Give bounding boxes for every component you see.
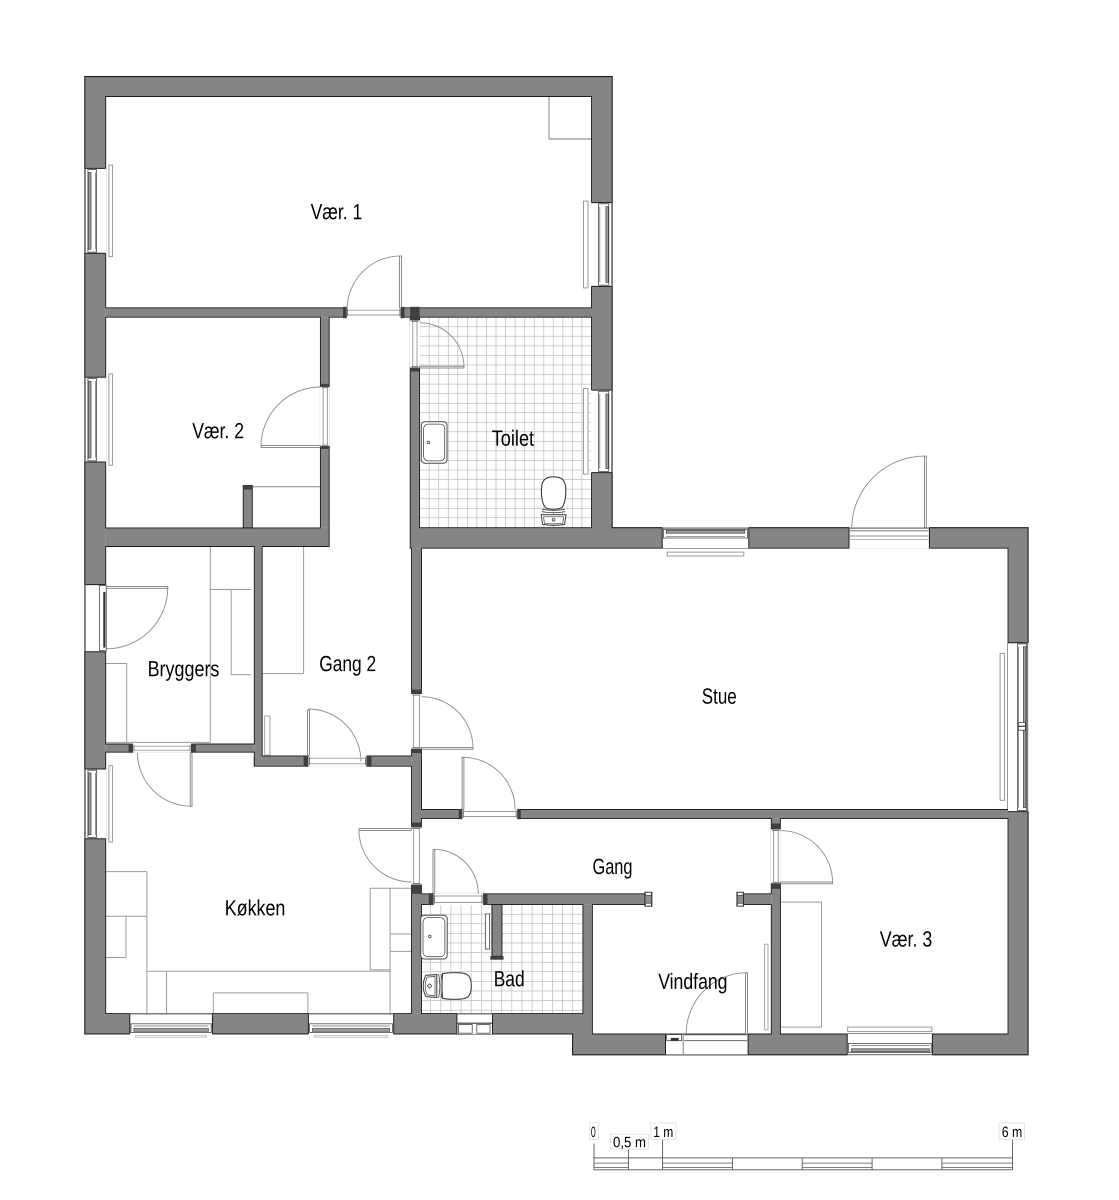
svg-text:0,5 m: 0,5 m xyxy=(613,1134,646,1151)
svg-text:Vær. 1: Vær. 1 xyxy=(311,199,363,224)
svg-text:Vindfang: Vindfang xyxy=(658,969,727,994)
svg-text:Gang: Gang xyxy=(592,854,632,879)
svg-text:1 m: 1 m xyxy=(653,1124,673,1141)
svg-text:0: 0 xyxy=(591,1124,596,1141)
svg-text:Køkken: Køkken xyxy=(225,895,286,920)
svg-text:Gang 2: Gang 2 xyxy=(319,651,376,676)
svg-text:Bad: Bad xyxy=(494,966,525,991)
svg-text:Toilet: Toilet xyxy=(492,426,534,451)
svg-text:Vær. 2: Vær. 2 xyxy=(192,418,244,443)
svg-text:Stue: Stue xyxy=(702,684,737,709)
svg-text:Vær. 3: Vær. 3 xyxy=(880,926,933,951)
svg-text:6 m: 6 m xyxy=(1002,1124,1023,1141)
svg-text:Bryggers: Bryggers xyxy=(148,656,220,681)
